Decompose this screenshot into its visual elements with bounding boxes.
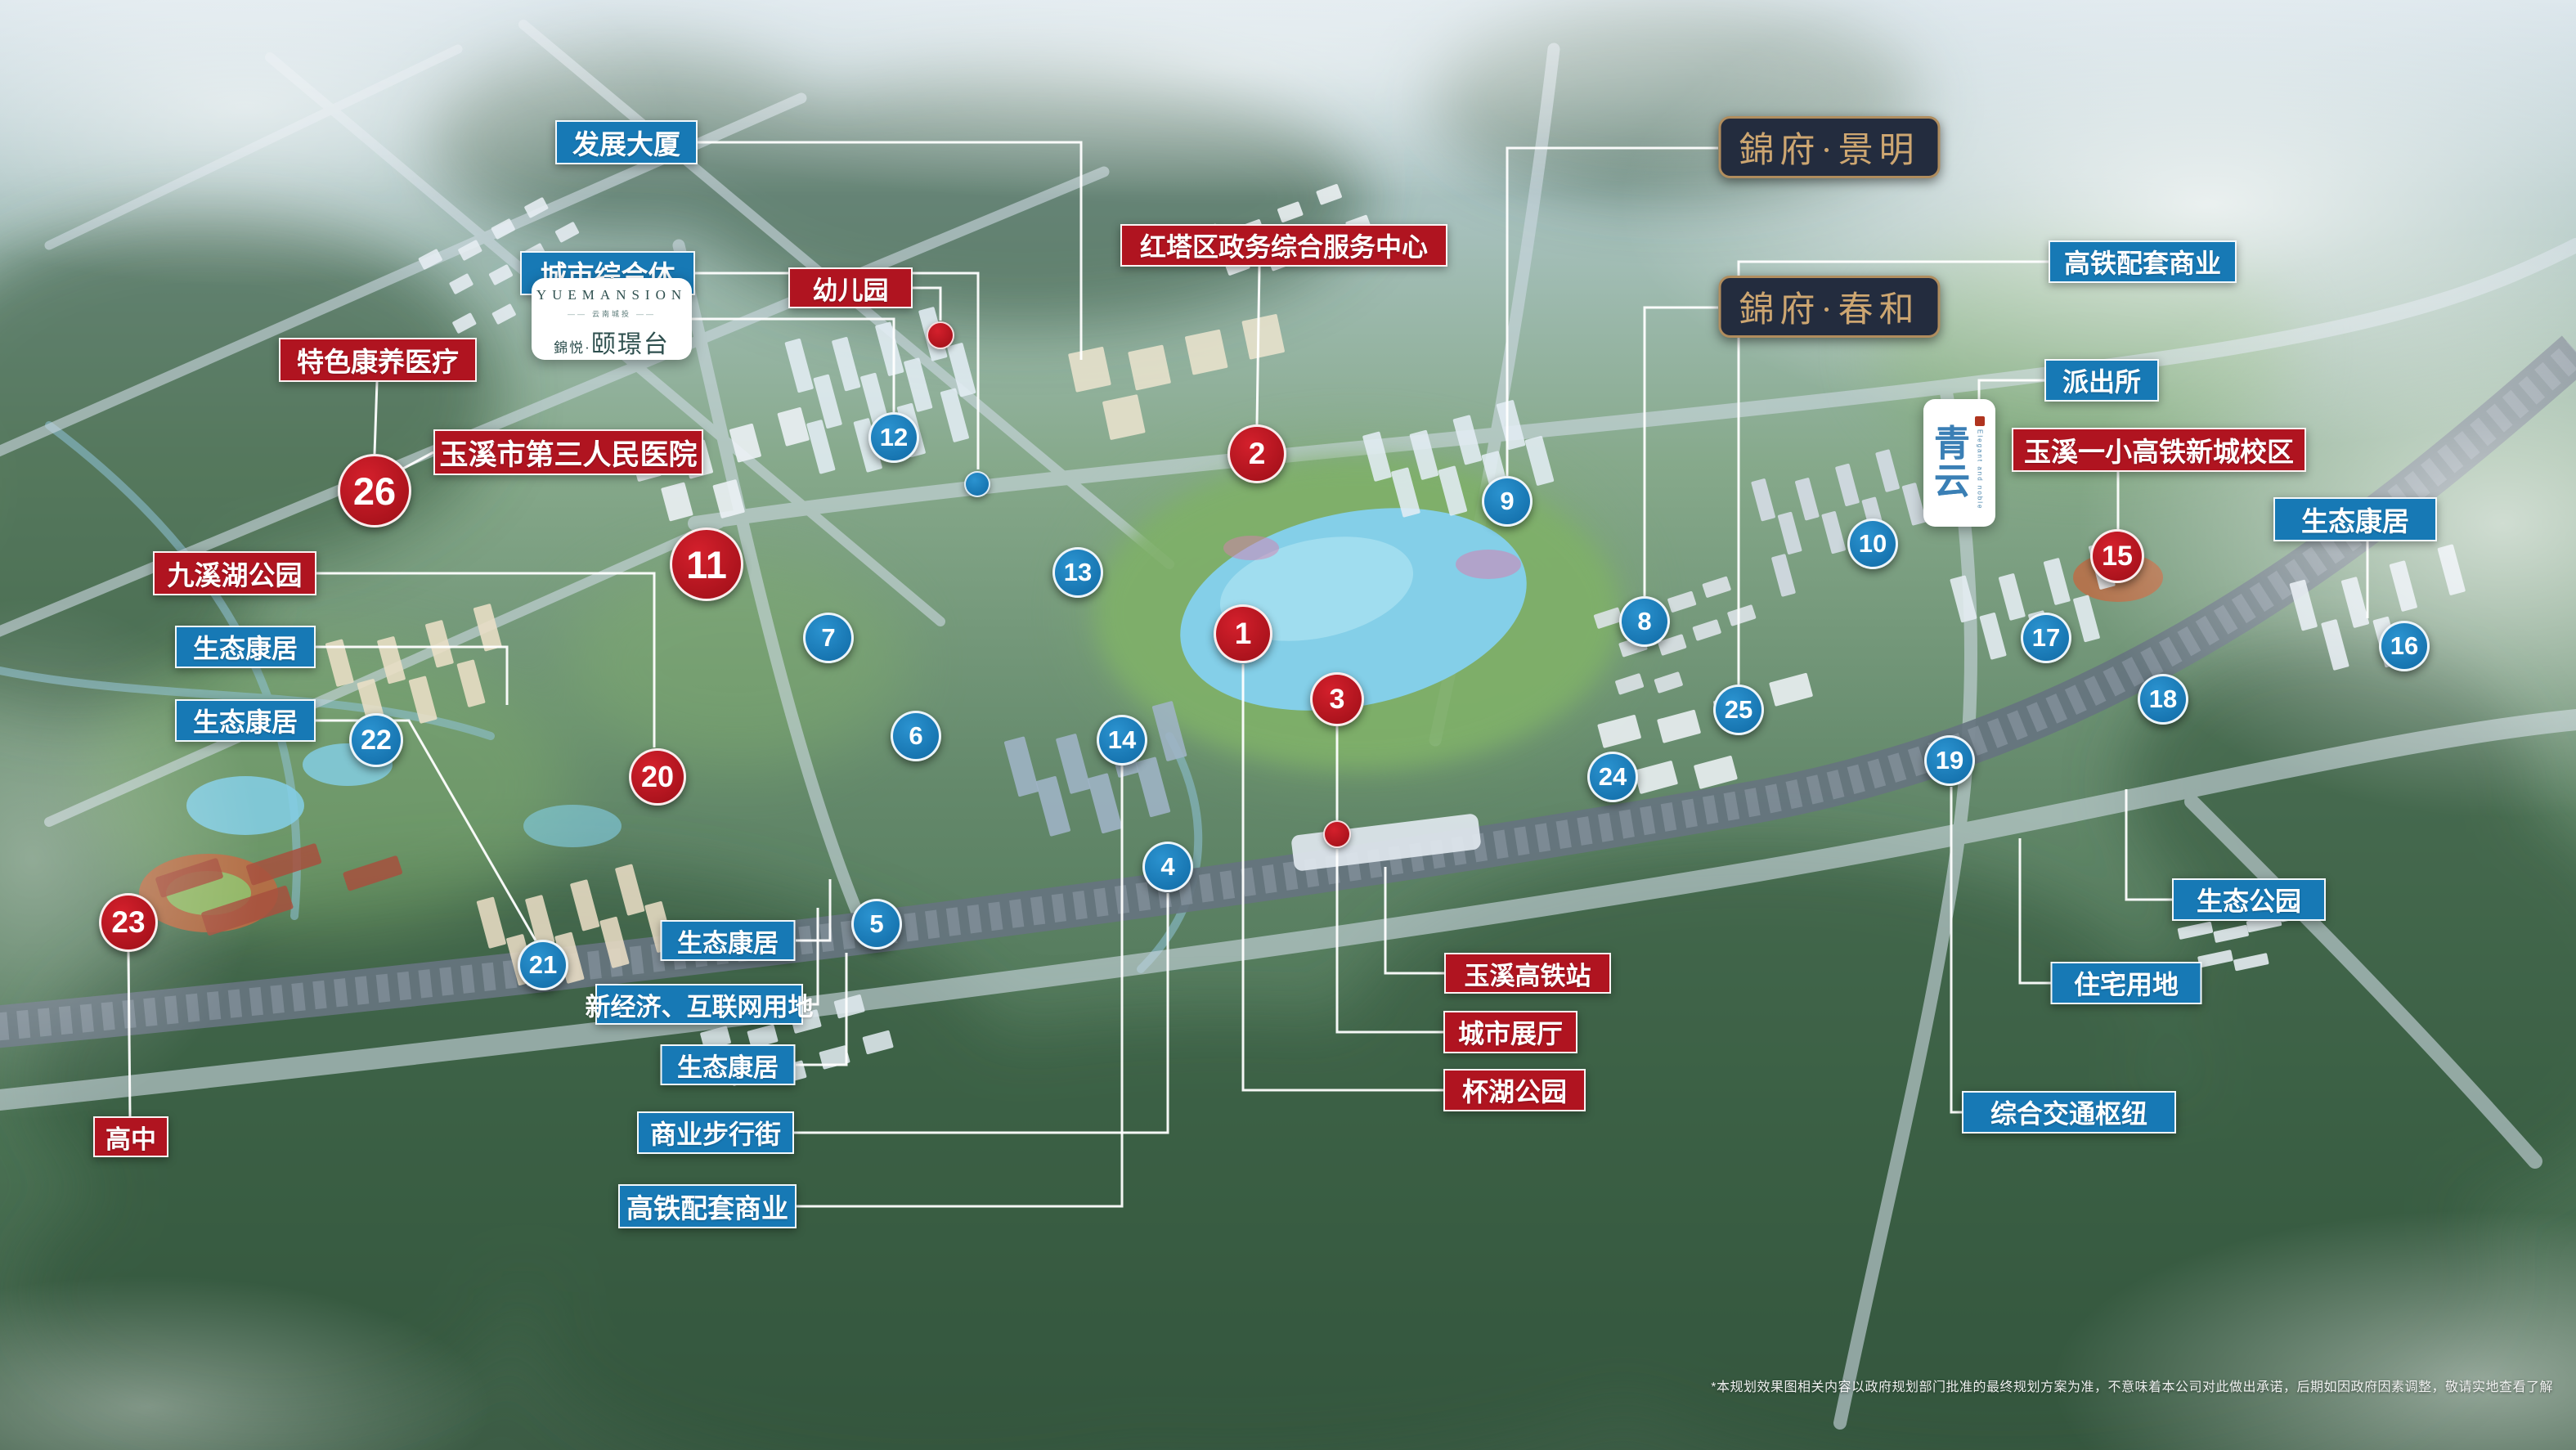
map-marker-16: 16	[2379, 621, 2430, 671]
map-marker-19: 19	[1924, 735, 1975, 786]
map-marker-23: 23	[99, 893, 158, 952]
map-label-yuxi-no1-primary-school: 玉溪一小高铁新城校区	[2012, 428, 2306, 472]
map-label-yuxi-hsr-station: 玉溪高铁站	[1444, 953, 1611, 994]
map-marker-2: 2	[1227, 424, 1286, 483]
map-marker-6: 6	[891, 711, 941, 761]
map-label-eco-residence-w1: 生态康居	[175, 626, 316, 668]
leader-line	[128, 952, 130, 1116]
map-marker-4: 4	[1142, 842, 1193, 892]
kindergarten-dot	[927, 321, 954, 349]
map-label-featured-healthcare: 特色康养医疗	[279, 338, 477, 382]
leader-line	[316, 721, 536, 940]
leader-line	[698, 142, 1081, 360]
leader-line	[1951, 787, 1962, 1112]
leader-line	[1243, 664, 1443, 1090]
map-label-hsr-commerce-south: 高铁配套商业	[618, 1184, 797, 1228]
map-label-eco-residence-w2: 生态康居	[175, 699, 316, 742]
qingyun-subtitle: Elegant and noble	[1977, 429, 1984, 510]
map-marker-12: 12	[868, 412, 919, 463]
map-label-kindergarten: 幼儿园	[788, 267, 913, 308]
map-marker-5: 5	[851, 899, 902, 949]
map-label-eco-residence-e: 生态康居	[2273, 497, 2437, 541]
map-marker-10: 10	[1847, 518, 1898, 569]
qingyun-side: Elegant and noble	[1975, 416, 1985, 510]
map-marker-13: 13	[1052, 547, 1103, 598]
leader-line	[2126, 789, 2172, 900]
map-label-commercial-pedestrian-street: 商业步行街	[637, 1111, 794, 1154]
map-marker-7: 7	[803, 613, 854, 663]
map-label-beihu-park: 杯湖公园	[1443, 1069, 1586, 1111]
map-label-residential-land: 住宅用地	[2051, 962, 2202, 1004]
map-marker-17: 17	[2021, 613, 2071, 663]
map-marker-25: 25	[1713, 685, 1764, 735]
yuemansion-wordmark: YUEMANSION	[536, 287, 687, 303]
exhibition-hall-dot	[1323, 820, 1351, 848]
qingyun-characters: 青云	[1934, 425, 1970, 501]
map-label-city-exhibition-hall: 城市展厅	[1443, 1011, 1577, 1053]
yuemansion-tagline: 云南城投	[563, 308, 661, 319]
leader-line	[1507, 148, 1718, 476]
map-label-third-peoples-hospital: 玉溪市第三人民医院	[433, 429, 703, 475]
qingyun-seal-icon	[1975, 416, 1985, 426]
masterplan-map: YUEMANSION 云南城投 錦悦·颐璟台 青云 Elegant and no…	[0, 0, 2576, 1450]
map-marker-11: 11	[670, 527, 743, 601]
yuemansion-logo: YUEMANSION 云南城投 錦悦·颐璟台	[532, 278, 692, 360]
map-marker-20: 20	[629, 748, 686, 806]
leader-line	[692, 319, 894, 412]
leader-line	[1257, 267, 1259, 424]
map-marker-1: 1	[1214, 604, 1272, 663]
map-label-eco-residence-s2: 生态康居	[661, 1044, 796, 1085]
map-label-jiuxi-lake-park: 九溪湖公园	[153, 551, 316, 595]
map-marker-22: 22	[349, 713, 403, 767]
leader-line	[794, 893, 1168, 1133]
map-marker-24: 24	[1587, 752, 1638, 802]
map-marker-26: 26	[338, 454, 411, 527]
project-location-dot	[964, 471, 990, 497]
yuemansion-cn-name: 錦悦·颐璟台	[554, 324, 670, 360]
map-label-development-tower: 发展大厦	[555, 120, 698, 164]
leader-line	[1385, 867, 1444, 973]
leader-line	[796, 879, 830, 940]
map-label-police-station: 派出所	[2044, 359, 2159, 402]
map-marker-21: 21	[518, 940, 568, 990]
leader-line	[1337, 849, 1443, 1032]
map-marker-15: 15	[2090, 529, 2144, 583]
map-label-eco-park: 生态公园	[2172, 878, 2326, 921]
leader-line	[316, 647, 507, 705]
map-marker-9: 9	[1482, 476, 1533, 527]
leader-line	[375, 382, 377, 454]
map-marker-18: 18	[2138, 674, 2188, 725]
map-label-government-service-center: 红塔区政务综合服务中心	[1120, 224, 1447, 267]
map-label-hsr-commerce-north: 高铁配套商业	[2049, 240, 2237, 283]
leader-line	[1645, 308, 1718, 596]
map-marker-8: 8	[1619, 596, 1670, 647]
qingyun-logo: 青云 Elegant and noble	[1923, 399, 1995, 527]
leader-line	[913, 288, 940, 321]
yuemansion-bars-icon	[577, 278, 647, 279]
map-label-eco-residence-s1: 生态康居	[661, 920, 796, 961]
map-label-transport-hub: 综合交通枢纽	[1962, 1091, 2176, 1134]
map-label-high-school: 高中	[93, 1116, 168, 1157]
map-label-jinfu-jingming: 錦府·景明	[1719, 116, 1941, 178]
leader-line	[2020, 838, 2051, 983]
map-label-new-economy-internet-land: 新经济、互联网用地	[595, 984, 803, 1025]
disclaimer-text: *本规划效果图相关内容以政府规划部门批准的最终规划方案为准，不意味着本公司对此做…	[1711, 1376, 2553, 1395]
map-marker-14: 14	[1097, 715, 1147, 765]
map-label-jinfu-chunhe: 錦府·春和	[1719, 276, 1941, 338]
map-marker-3: 3	[1310, 672, 1364, 726]
